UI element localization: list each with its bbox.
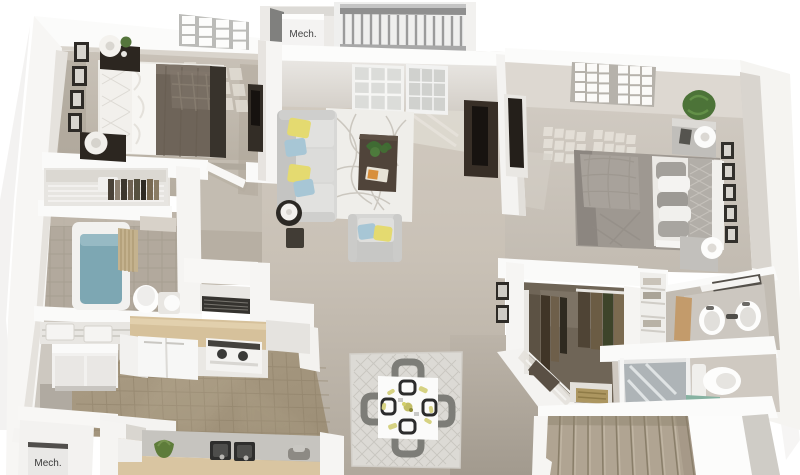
svg-text:Mech.: Mech. bbox=[34, 458, 61, 469]
svg-text:Mech.: Mech. bbox=[289, 29, 316, 40]
